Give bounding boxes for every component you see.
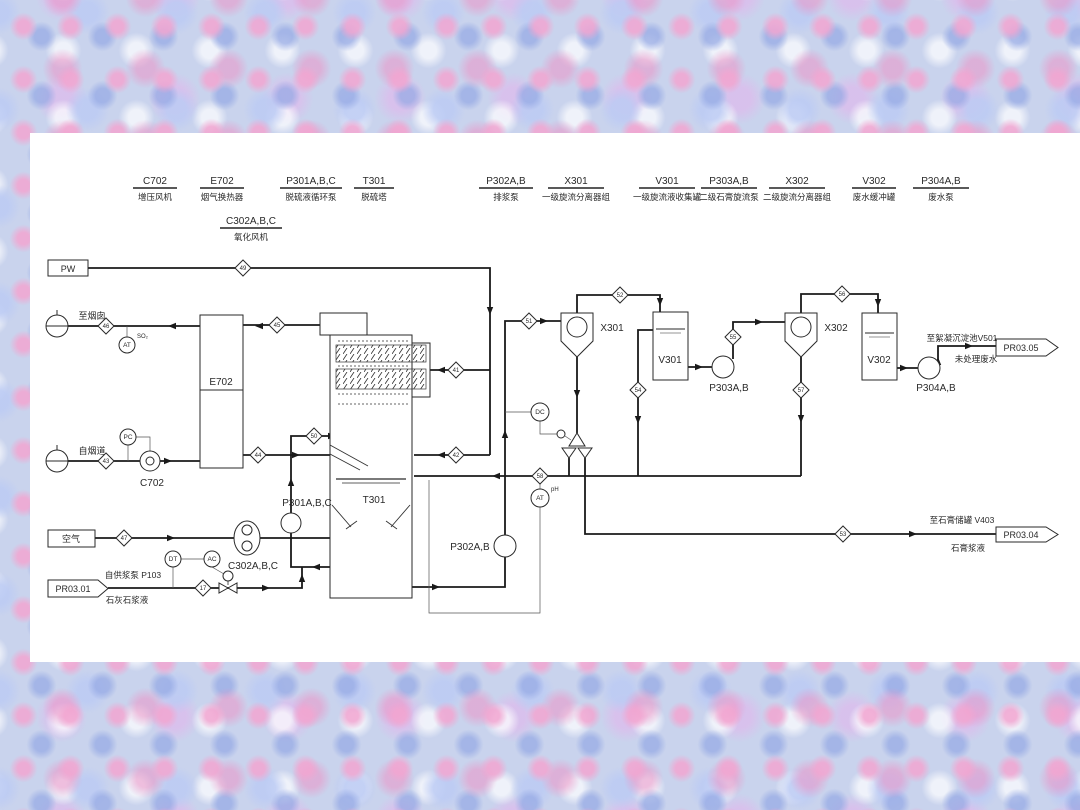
stream-tag-49: 49 (235, 260, 251, 276)
stream-tag-50: 50 (306, 428, 322, 444)
p302-label: P302A,B (450, 542, 490, 553)
svg-text:44: 44 (255, 453, 262, 459)
equipment-desc: 增压风机 (138, 192, 173, 202)
equipment-tag: V301 (655, 176, 679, 187)
heat-exchanger-e702: E702 (200, 315, 243, 468)
dt-label: DT (169, 556, 178, 563)
instrument-at-so2: AT SO₂ (119, 334, 149, 353)
svg-text:50: 50 (311, 434, 318, 440)
p304-label: P304A,B (916, 383, 956, 394)
at-so2-label: AT (123, 342, 131, 349)
equipment-desc: 氧化风机 (234, 232, 269, 242)
at-ph-label: AT (536, 495, 544, 502)
stream-tag-55: 55 (725, 329, 741, 345)
tower-t301: T301 (320, 313, 430, 598)
svg-text:45: 45 (274, 323, 281, 329)
dc-label: DC (535, 409, 545, 416)
to-settling-tank-label: 至絮凝沉淀池V501 (927, 333, 998, 343)
stream-tag-52: 52 (612, 287, 628, 303)
svg-text:47: 47 (121, 536, 128, 542)
svg-text:53: 53 (840, 532, 847, 538)
equipment-desc: 烟气换热器 (201, 192, 244, 202)
ac-label: AC (207, 556, 216, 563)
equipment-tag: X301 (564, 176, 588, 187)
stream-tag-53: 53 (835, 526, 851, 542)
equipment-tag: E702 (210, 176, 234, 187)
tank-v302: V302 (862, 313, 897, 380)
svg-text:51: 51 (526, 319, 533, 325)
equipment-header-t301: T301 脱硫塔 (354, 176, 394, 202)
equipment-header-row1: C702 增压风机 E702 烟气换热器 P301A,B,C 脱硫液循环泵 T3… (133, 176, 969, 202)
instrument-dt: DT (165, 551, 181, 567)
p301-label: P301A,B,C (282, 498, 331, 509)
equipment-tag: C302A,B,C (226, 216, 276, 227)
equipment-header-e702: E702 烟气换热器 (200, 176, 244, 202)
e702-label: E702 (209, 377, 233, 388)
pfd-svg: C702 增压风机 E702 烟气换热器 P301A,B,C 脱硫液循环泵 T3… (30, 133, 1080, 662)
equipment-desc: 一级旋流液收集罐 (633, 192, 702, 202)
equipment-header-c702: C702 增压风机 (133, 176, 177, 202)
equipment-header-c302: C302A,B,C 氧化风机 (220, 216, 282, 242)
equipment-header-p301: P301A,B,C 脱硫液循环泵 (280, 176, 342, 202)
equipment-desc: 脱硫塔 (361, 192, 387, 202)
diagram-canvas: C702 增压风机 E702 烟气换热器 P301A,B,C 脱硫液循环泵 T3… (30, 133, 1080, 662)
untreated-wastewater-label: 未处理废水 (955, 354, 998, 364)
stream-tag-57: 57 (793, 382, 809, 398)
equipment-tag: X302 (785, 176, 809, 187)
boundary-air: 空气 (48, 530, 95, 547)
pc-label: PC (123, 434, 132, 441)
stream-tag-54: 54 (630, 382, 646, 398)
equipment-desc: 二级旋流分离器组 (763, 192, 832, 202)
equipment-desc: 废水缓冲罐 (853, 192, 896, 202)
splitter-valves (557, 430, 592, 458)
x302-label: X302 (824, 323, 848, 334)
from-flue-label: 自烟道 (78, 445, 105, 456)
fan-c702: C702 (140, 451, 164, 489)
x301-label: X301 (600, 323, 624, 334)
equipment-header-p303: P303A,B 二级石膏旋流泵 (699, 176, 759, 202)
tank-v301: V301 (653, 312, 688, 380)
equipment-tag: V302 (862, 176, 886, 187)
boundary-pw: PW (48, 260, 88, 276)
stream-tag-41: 41 (448, 362, 464, 378)
v301-label: V301 (658, 355, 682, 366)
equipment-tag: C702 (143, 176, 167, 187)
to-gypsum-tank-label: 至石膏储罐 V403 (930, 515, 995, 525)
pr0305-label: PR03.05 (1003, 343, 1038, 353)
flue-connection (46, 445, 68, 472)
stream-tag-51: 51 (521, 313, 537, 329)
equipment-header-p302: P302A,B 排浆泵 (479, 176, 533, 202)
svg-text:49: 49 (240, 266, 247, 272)
equipment-header-row2: C302A,B,C 氧化风机 (220, 216, 282, 242)
pump-p301: P301A,B,C (281, 498, 332, 533)
pump-p303: P303A,B (709, 356, 749, 394)
limestone-slurry-label: 石灰石浆液 (106, 595, 149, 605)
svg-text:17: 17 (200, 586, 207, 592)
equipment-tag: P301A,B,C (286, 176, 335, 187)
c302-label: C302A,B,C (228, 561, 278, 572)
limestone-control-valve (219, 571, 237, 593)
boundary-pr0301: PR03.01 (48, 580, 108, 597)
cyclone-x302: X302 (785, 313, 848, 357)
at-ph-superscript: pH (551, 487, 559, 493)
svg-text:41: 41 (453, 368, 460, 374)
svg-text:56: 56 (839, 292, 846, 298)
boundary-pr0304: PR03.04 (996, 527, 1058, 542)
equipment-desc: 排浆泵 (493, 192, 519, 202)
stream-tag-47: 47 (116, 530, 132, 546)
svg-text:46: 46 (103, 324, 110, 330)
instrument-ac: AC (204, 551, 220, 567)
equipment-header-p304: P304A,B 废水泵 (913, 176, 969, 202)
instrument-dc: DC (531, 403, 549, 421)
from-supply-pump-label: 自供浆泵 P103 (105, 570, 161, 580)
p303-label: P303A,B (709, 383, 749, 394)
pump-p302: P302A,B (450, 535, 516, 557)
stream-tag-42: 42 (448, 447, 464, 463)
pump-p304: P304A,B (916, 357, 956, 394)
equipment-header-x301: X301 一级旋流分离器组 (542, 176, 611, 202)
equipment-tag: P303A,B (709, 176, 749, 187)
equipment-tag: T301 (363, 176, 386, 187)
equipment-desc: 废水泵 (928, 192, 954, 202)
svg-text:52: 52 (617, 293, 624, 299)
equipment-tag: P304A,B (921, 176, 961, 187)
svg-text:43: 43 (103, 459, 110, 465)
instrument-pc: PC (120, 429, 136, 445)
air-label: 空气 (62, 533, 80, 544)
equipment-tag: P302A,B (486, 176, 526, 187)
boundary-pr0305: PR03.05 (996, 339, 1058, 356)
cyclone-x301: X301 (561, 313, 624, 357)
equipment-header-v301: V301 一级旋流液收集罐 (633, 176, 702, 202)
stack-connection (46, 310, 68, 337)
svg-text:57: 57 (798, 388, 805, 394)
c702-label: C702 (140, 478, 164, 489)
equipment-desc: 二级石膏旋流泵 (699, 192, 759, 202)
stream-tag-17: 17 (195, 580, 211, 596)
stream-tag-58: 58 (532, 468, 548, 484)
pr0301-label: PR03.01 (55, 584, 90, 594)
at-so2-superscript: SO₂ (137, 334, 149, 340)
svg-text:42: 42 (453, 453, 460, 459)
stream-tag-56: 56 (834, 286, 850, 302)
pr0304-label: PR03.04 (1003, 530, 1038, 540)
stream-tag-45: 45 (269, 317, 285, 333)
blower-c302: C302A,B,C (228, 521, 278, 572)
stream-tag-44: 44 (250, 447, 266, 463)
equipment-header-v302: V302 废水缓冲罐 (852, 176, 896, 202)
gypsum-slurry-label: 石膏浆液 (951, 543, 986, 553)
to-stack-label: 至烟囱 (78, 310, 105, 321)
equipment-desc: 脱硫液循环泵 (285, 192, 337, 202)
equipment-header-x302: X302 二级旋流分离器组 (763, 176, 832, 202)
svg-text:58: 58 (537, 474, 544, 480)
t301-label: T301 (363, 495, 386, 506)
instrument-at-ph: AT pH (531, 487, 559, 507)
v302-label: V302 (867, 355, 891, 366)
equipment-desc: 一级旋流分离器组 (542, 192, 611, 202)
svg-text:55: 55 (730, 335, 737, 341)
svg-text:54: 54 (635, 388, 642, 394)
pw-label: PW (61, 264, 76, 274)
